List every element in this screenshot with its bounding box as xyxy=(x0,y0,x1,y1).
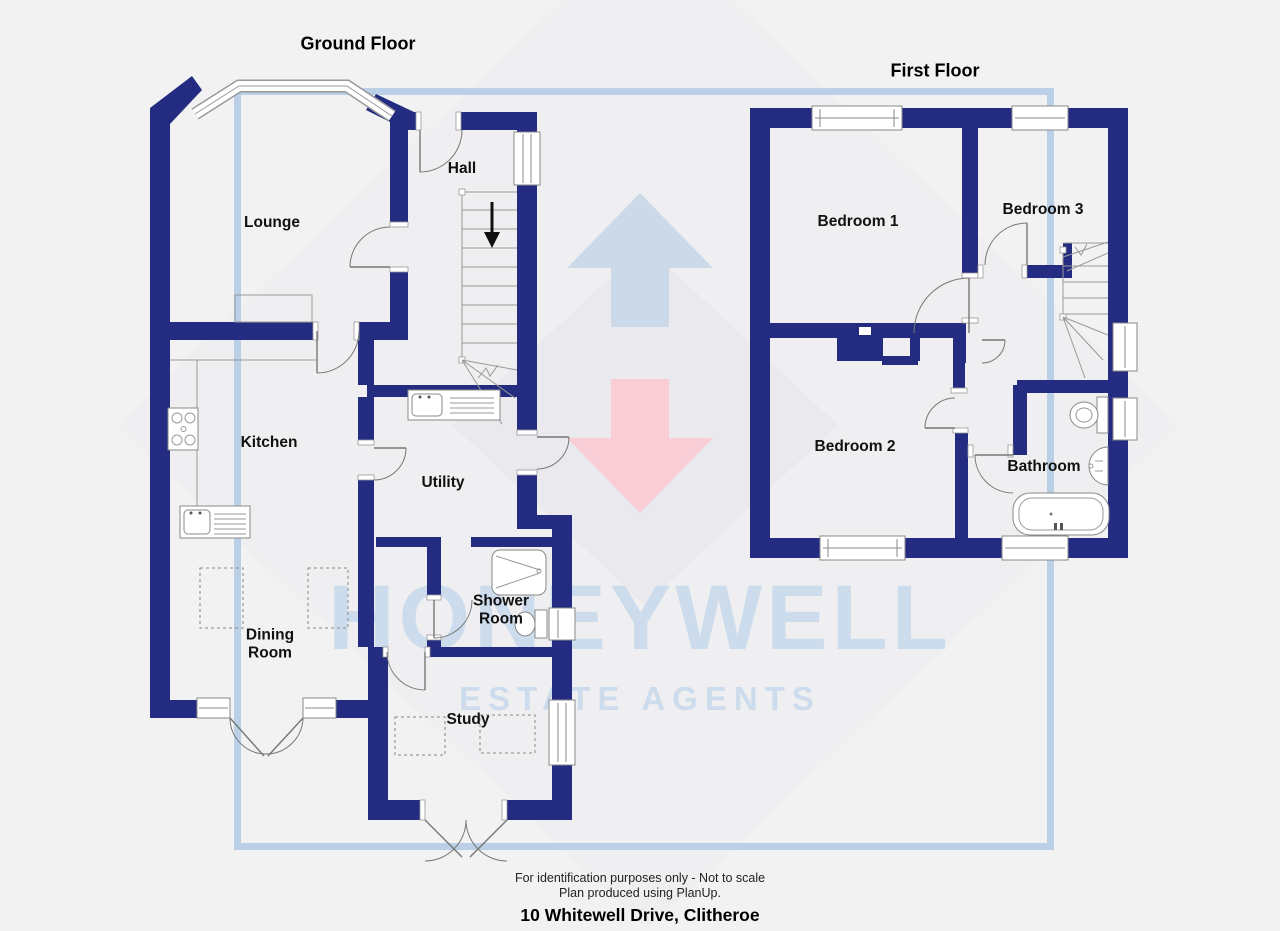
room-label-bedroom-2: Bedroom 2 xyxy=(815,438,896,456)
room-label-bedroom-3: Bedroom 3 xyxy=(1003,201,1084,219)
fireplace xyxy=(235,295,312,322)
toilet-icon-bathroom xyxy=(1070,397,1108,433)
utility-sink-icon xyxy=(408,390,500,420)
room-label-hall: Hall xyxy=(448,160,476,178)
room-label-kitchen: Kitchen xyxy=(241,434,298,452)
room-label-lounge: Lounge xyxy=(244,214,300,232)
floorplan-page: HONEYWELL ESTATE AGENTS xyxy=(0,0,1280,931)
stairs-down-arrow-icon xyxy=(484,232,500,248)
property-address: 10 Whitewell Drive, Clitheroe xyxy=(0,905,1280,926)
first-floor-walls xyxy=(750,108,1128,558)
room-label-shower-room: Shower Room xyxy=(461,593,541,630)
first-floor-title: First Floor xyxy=(891,61,980,82)
room-label-utility: Utility xyxy=(421,474,464,492)
shower-icon xyxy=(492,550,546,595)
disclaimer-line-2: Plan produced using PlanUp. xyxy=(0,886,1280,900)
closet-notch xyxy=(859,327,871,335)
room-label-bedroom-1: Bedroom 1 xyxy=(818,213,899,231)
basin-icon xyxy=(1089,447,1108,485)
room-label-bathroom: Bathroom xyxy=(1007,458,1080,476)
kitchen-sink-icon xyxy=(180,506,250,538)
disclaimer-line-1: For identification purposes only - Not t… xyxy=(0,871,1280,885)
hob-icon xyxy=(168,408,198,450)
ground-floor-plan xyxy=(140,60,600,870)
ground-floor-title: Ground Floor xyxy=(301,34,416,55)
bath-icon xyxy=(1013,493,1109,535)
room-label-dining-room: Dining Room xyxy=(235,627,305,664)
first-floor-plan xyxy=(745,95,1145,565)
bay-window xyxy=(195,86,392,116)
room-label-study: Study xyxy=(446,711,489,729)
